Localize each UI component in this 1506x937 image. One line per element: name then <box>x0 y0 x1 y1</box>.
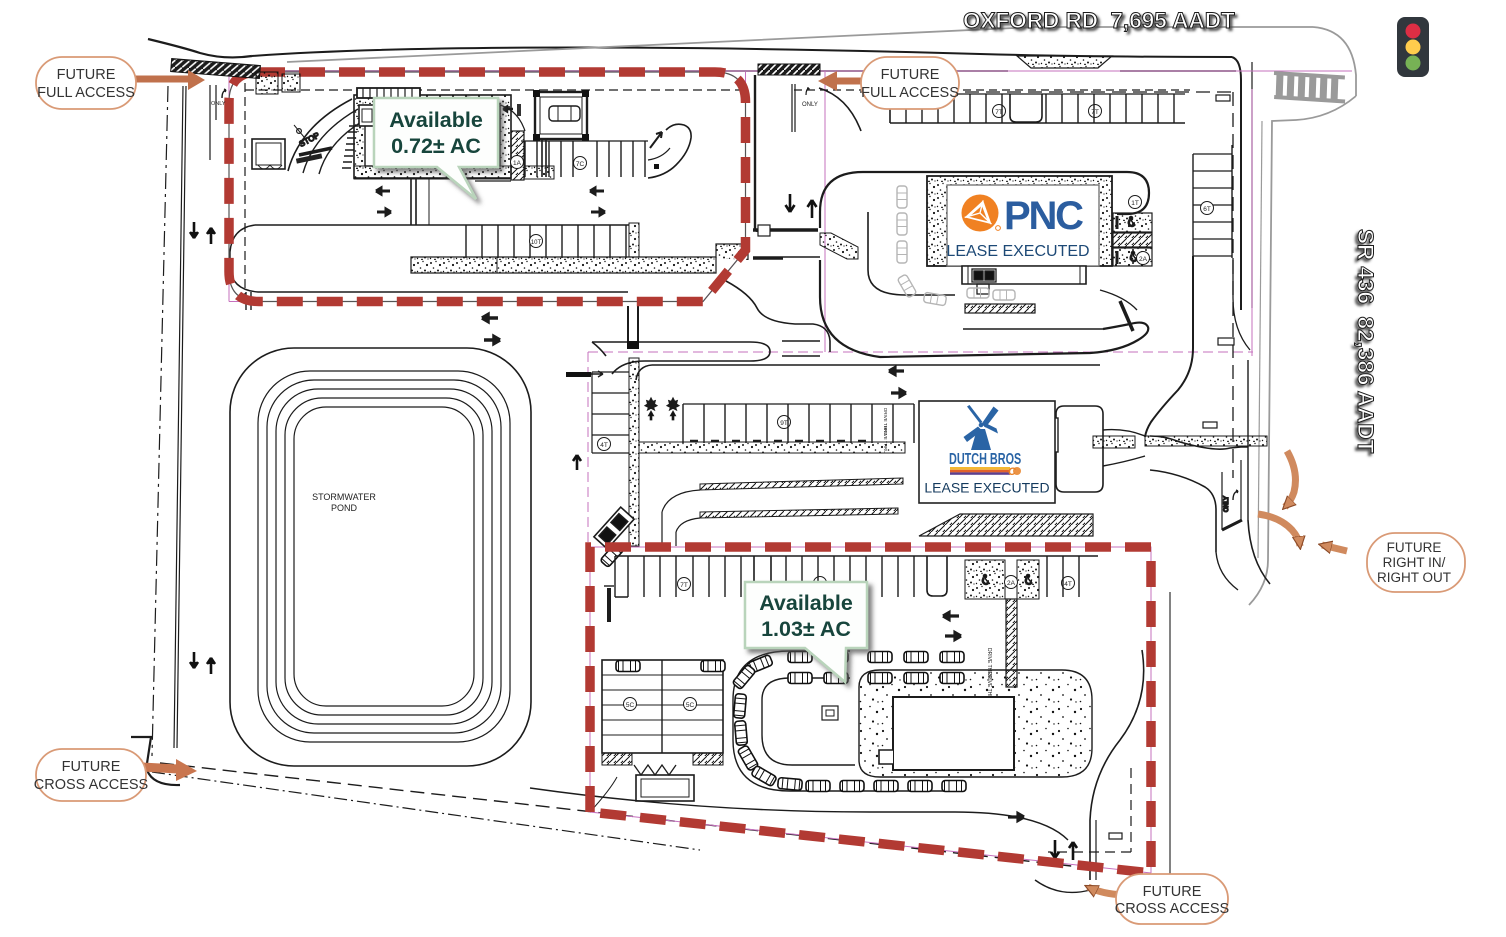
svg-text:FULL ACCESS: FULL ACCESS <box>37 85 135 101</box>
svg-text:Available: Available <box>759 591 853 615</box>
svg-text:4T: 4T <box>1064 581 1072 588</box>
svg-text:FUTURE: FUTURE <box>1387 540 1442 555</box>
svg-text:CROSS ACCESS: CROSS ACCESS <box>34 777 148 793</box>
svg-text:FUTURE: FUTURE <box>62 759 121 775</box>
svg-text:0.72± AC: 0.72± AC <box>391 134 481 158</box>
svg-text:STORMWATER: STORMWATER <box>312 492 376 502</box>
svg-text:Available: Available <box>389 108 483 132</box>
svg-text:5C: 5C <box>626 702 635 709</box>
svg-text:2A: 2A <box>1139 256 1148 263</box>
svg-text:LEASE EXECUTED: LEASE EXECUTED <box>946 243 1089 260</box>
svg-text:CROSS ACCESS: CROSS ACCESS <box>1115 901 1229 917</box>
svg-text:7T: 7T <box>680 582 688 589</box>
svg-text:FUTURE: FUTURE <box>881 67 940 83</box>
svg-text:LEASE EXECUTED: LEASE EXECUTED <box>924 480 1049 496</box>
svg-text:DUTCH BROS: DUTCH BROS <box>949 450 1021 467</box>
svg-text:RIGHT OUT: RIGHT OUT <box>1377 570 1451 585</box>
svg-text:POND: POND <box>331 503 358 513</box>
svg-text:ONLY: ONLY <box>211 101 226 107</box>
svg-text:ONLY: ONLY <box>1224 496 1230 512</box>
svg-text:6T: 6T <box>1203 206 1211 213</box>
svg-text:FULL ACCESS: FULL ACCESS <box>861 85 959 101</box>
svg-text:ONLY: ONLY <box>802 102 818 108</box>
svg-text:7C: 7C <box>576 161 585 168</box>
svg-text:FUTURE: FUTURE <box>57 67 116 83</box>
svg-text:10T: 10T <box>531 240 542 246</box>
svg-text:1T: 1T <box>1131 200 1139 207</box>
svg-text:RIGHT IN/: RIGHT IN/ <box>1383 555 1446 570</box>
svg-text:SR 436 82,386 AADT: SR 436 82,386 AADT <box>1353 229 1378 454</box>
svg-text:4T: 4T <box>600 442 608 449</box>
svg-text:1.03± AC: 1.03± AC <box>761 617 851 641</box>
svg-text:5C: 5C <box>686 702 695 709</box>
svg-text:OXFORD RD 7,695 AADT: OXFORD RD 7,695 AADT <box>963 8 1235 33</box>
svg-text:1A: 1A <box>513 160 522 167</box>
svg-text:2A: 2A <box>1007 580 1016 587</box>
svg-text:9T: 9T <box>780 420 788 427</box>
svg-text:7T: 7T <box>1091 109 1099 116</box>
svg-text:7T: 7T <box>995 109 1003 116</box>
svg-text:PNC: PNC <box>1004 194 1084 238</box>
svg-text:FUTURE: FUTURE <box>1143 884 1202 900</box>
